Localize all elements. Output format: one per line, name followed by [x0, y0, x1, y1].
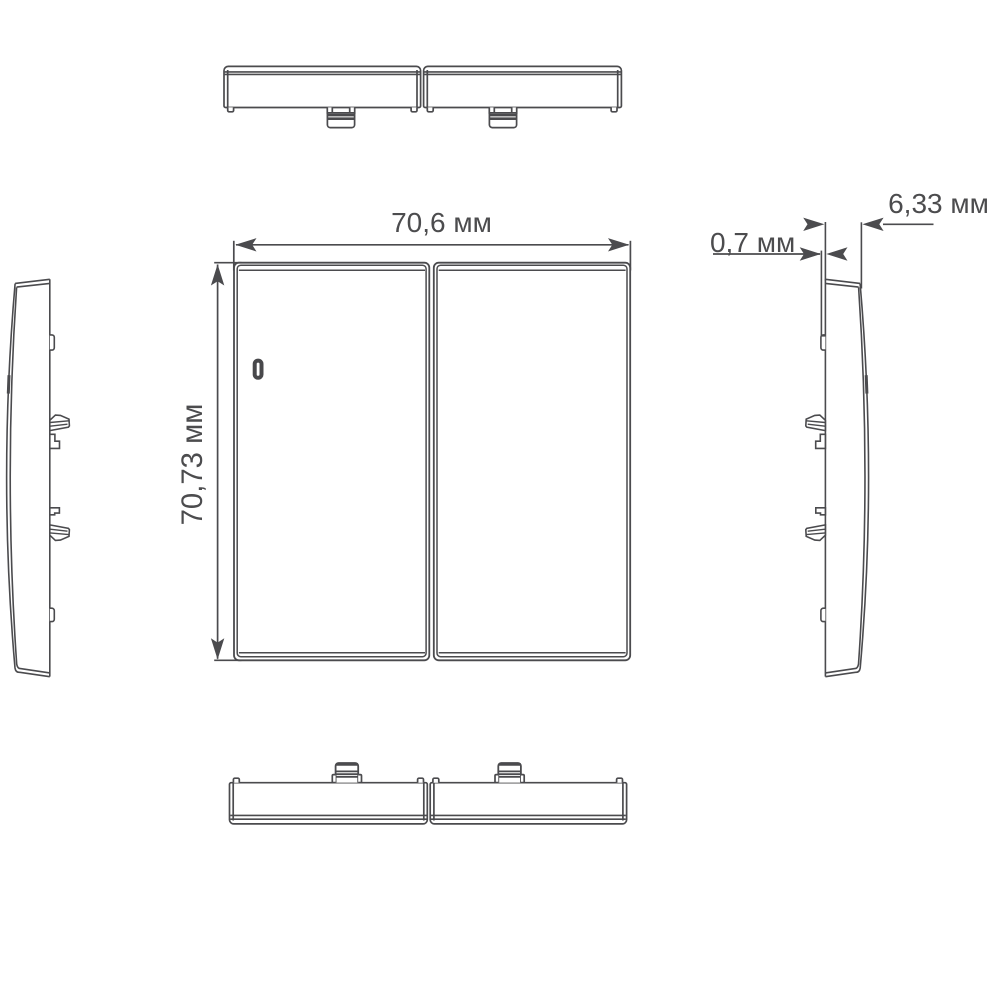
- svg-text:70,73 мм: 70,73 мм: [176, 404, 209, 526]
- svg-text:0,7 мм: 0,7 мм: [710, 227, 795, 258]
- svg-text:70,6 мм: 70,6 мм: [391, 207, 492, 238]
- svg-text:6,33 мм: 6,33 мм: [888, 188, 989, 219]
